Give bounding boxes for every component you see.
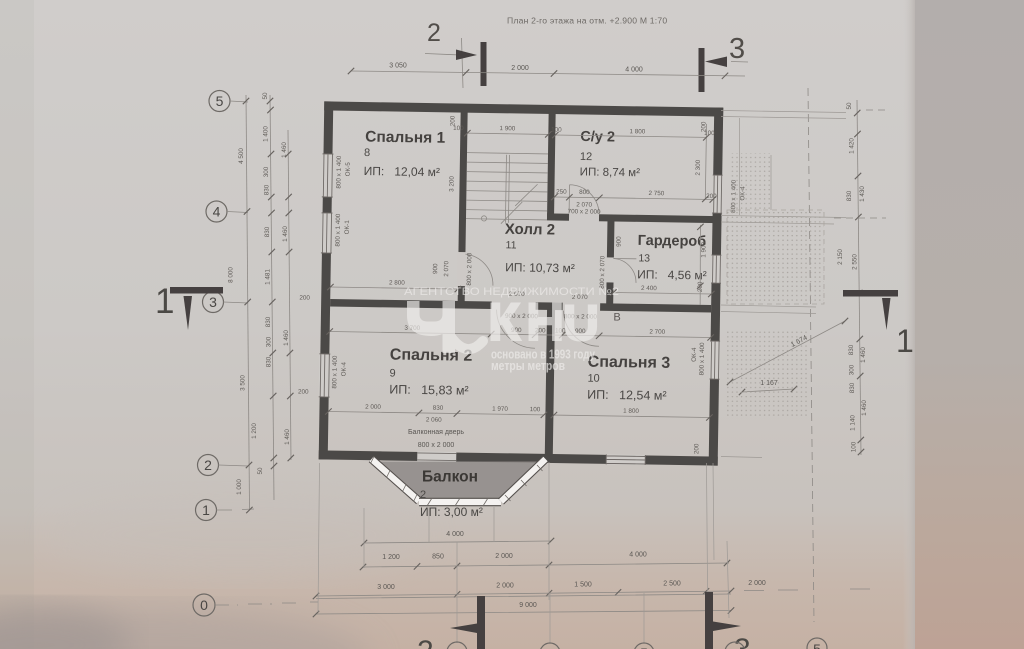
svg-text:ИП: 15,83 м²: ИП: 15,83 м² (389, 382, 469, 397)
svg-text:5: 5 (216, 93, 224, 109)
svg-text:1 200: 1 200 (382, 554, 400, 561)
svg-text:830: 830 (849, 382, 856, 393)
svg-text:2 000: 2 000 (748, 580, 766, 587)
svg-text:2 000: 2 000 (496, 583, 514, 590)
svg-text:300: 300 (263, 166, 270, 177)
svg-text:1 900: 1 900 (499, 125, 515, 132)
svg-text:830: 830 (264, 226, 271, 237)
svg-text:800 х 2 000: 800 х 2 000 (418, 442, 455, 449)
svg-text:2 000: 2 000 (365, 404, 381, 411)
svg-text:Гардероб: Гардероб (638, 233, 707, 250)
svg-text:Спальня 1: Спальня 1 (365, 129, 446, 147)
svg-text:2: 2 (427, 19, 441, 47)
svg-text:300: 300 (849, 364, 856, 375)
svg-text:Балкон: Балкон (422, 469, 478, 486)
svg-text:800 х 2 000: 800 х 2 000 (466, 252, 474, 286)
svg-text:1 200: 1 200 (251, 423, 258, 439)
svg-text:1 800: 1 800 (629, 128, 645, 135)
svg-text:1 140: 1 140 (850, 415, 857, 431)
svg-text:2 070: 2 070 (443, 260, 450, 276)
svg-text:250: 250 (556, 189, 567, 196)
svg-text:2 800: 2 800 (389, 279, 405, 286)
svg-text:830: 830 (433, 405, 444, 412)
svg-text:ОК-1: ОК-1 (344, 220, 351, 235)
svg-text:2 000: 2 000 (495, 553, 513, 560)
svg-text:5: 5 (813, 641, 821, 649)
svg-text:830: 830 (846, 190, 853, 201)
svg-text:200: 200 (449, 115, 456, 126)
svg-text:4 000: 4 000 (446, 531, 464, 538)
svg-text:3 050: 3 050 (389, 63, 407, 70)
svg-text:1: 1 (896, 323, 914, 359)
svg-text:ИП: 10,73 м²: ИП: 10,73 м² (505, 260, 575, 275)
svg-text:1 460: 1 460 (282, 226, 289, 242)
svg-text:метры метров: метры метров (491, 359, 565, 373)
svg-text:200: 200 (298, 389, 309, 396)
svg-text:10: 10 (587, 373, 599, 385)
svg-text:1 481: 1 481 (264, 269, 271, 285)
svg-text:700 х 2 000: 700 х 2 000 (568, 208, 602, 216)
svg-text:12: 12 (580, 151, 592, 163)
svg-text:ИП: 4,56 м²: ИП: 4,56 м² (637, 267, 707, 282)
svg-text:ИП: 3,00 м²: ИП: 3,00 м² (420, 505, 483, 519)
svg-text:900: 900 (432, 263, 439, 274)
svg-text:1 420: 1 420 (849, 138, 856, 154)
svg-text:1: 1 (202, 502, 210, 518)
svg-text:830: 830 (263, 184, 270, 195)
svg-text:1 460: 1 460 (281, 142, 288, 158)
svg-text:830: 830 (265, 316, 272, 327)
svg-text:ИП: 12,04 м²: ИП: 12,04 м² (364, 164, 440, 179)
svg-text:1 800: 1 800 (623, 408, 639, 415)
svg-text:3 500: 3 500 (240, 375, 247, 391)
svg-text:ОК-4: ОК-4 (691, 347, 698, 362)
svg-text:ИП: 8,74 м²: ИП: 8,74 м² (580, 166, 641, 179)
svg-text:С/у 2: С/у 2 (580, 129, 615, 146)
svg-text:4 000: 4 000 (629, 552, 647, 559)
svg-text:100: 100 (704, 130, 715, 137)
svg-text:1 460: 1 460 (861, 400, 868, 416)
svg-text:ОК-5: ОК-5 (345, 162, 352, 177)
svg-text:850: 850 (432, 554, 444, 561)
svg-text:200: 200 (299, 295, 310, 302)
svg-text:1 460: 1 460 (284, 429, 291, 445)
svg-text:1 460: 1 460 (283, 330, 290, 346)
svg-text:0: 0 (200, 597, 208, 613)
svg-text:1 970: 1 970 (492, 406, 508, 413)
svg-text:100: 100 (530, 406, 541, 413)
svg-text:100: 100 (551, 126, 562, 133)
svg-text:4 000: 4 000 (625, 67, 643, 74)
svg-text:3: 3 (734, 633, 751, 649)
svg-text:200: 200 (697, 281, 704, 292)
svg-text:2 060: 2 060 (426, 417, 442, 424)
svg-text:50: 50 (257, 467, 264, 475)
svg-text:50: 50 (262, 92, 269, 100)
svg-text:2 150: 2 150 (837, 249, 844, 265)
svg-text:800: 800 (579, 189, 590, 196)
svg-text:4: 4 (213, 204, 221, 220)
svg-text:200: 200 (706, 193, 717, 200)
svg-text:2: 2 (417, 635, 434, 649)
svg-text:1 500: 1 500 (574, 582, 592, 589)
svg-text:1 900: 1 900 (700, 241, 707, 257)
svg-text:13: 13 (638, 252, 650, 264)
svg-text:5: 5 (640, 645, 648, 649)
svg-text:2 750: 2 750 (648, 190, 664, 197)
svg-text:1: 1 (155, 282, 174, 321)
svg-text:Спальня 3: Спальня 3 (588, 354, 671, 372)
svg-text:К: К (488, 293, 521, 352)
svg-text:900: 900 (616, 236, 623, 247)
svg-text:830: 830 (848, 344, 855, 355)
svg-text:2 400: 2 400 (641, 285, 657, 292)
svg-text:9 000: 9 000 (519, 602, 537, 609)
svg-text:100: 100 (851, 441, 858, 452)
svg-text:Холл 2: Холл 2 (505, 221, 555, 239)
svg-text:3 000: 3 000 (377, 584, 395, 591)
svg-text:1 430: 1 430 (859, 186, 866, 202)
svg-text:1 000: 1 000 (236, 479, 243, 495)
svg-text:2 700: 2 700 (649, 329, 665, 336)
svg-text:3 200: 3 200 (448, 175, 455, 191)
svg-text:2: 2 (420, 489, 426, 501)
svg-text:830: 830 (266, 356, 273, 367)
svg-text:U: U (563, 295, 599, 351)
svg-text:2: 2 (204, 457, 212, 473)
svg-text:9: 9 (389, 367, 395, 379)
svg-text:Н: Н (526, 293, 564, 352)
svg-text:8 000: 8 000 (228, 267, 235, 283)
svg-text:800 х 1 400: 800 х 1 400 (335, 213, 343, 247)
svg-text:800 х 1 400: 800 х 1 400 (331, 355, 339, 389)
svg-text:800 х 1 400: 800 х 1 400 (335, 155, 343, 189)
svg-text:2 000: 2 000 (511, 65, 529, 72)
svg-text:11: 11 (505, 239, 516, 251)
svg-text:4 500: 4 500 (238, 148, 245, 164)
svg-text:ОК-4: ОК-4 (340, 362, 347, 377)
svg-text:300: 300 (265, 336, 272, 347)
svg-text:3: 3 (209, 294, 217, 310)
svg-text:1 400: 1 400 (263, 126, 270, 142)
svg-text:50: 50 (846, 102, 853, 110)
svg-text:ИП: 12,54 м²: ИП: 12,54 м² (587, 388, 667, 403)
svg-text:3: 3 (729, 33, 745, 65)
svg-text:2 550: 2 550 (852, 254, 859, 270)
svg-text:Балконная дверь: Балконная дверь (408, 429, 464, 436)
svg-text:8: 8 (364, 147, 370, 159)
svg-text:800 х 1 400: 800 х 1 400 (699, 342, 707, 376)
svg-text:2 500: 2 500 (663, 581, 681, 588)
svg-text:1 460: 1 460 (860, 347, 867, 363)
svg-text:200: 200 (693, 443, 700, 454)
svg-text:В: В (613, 311, 621, 323)
svg-text:800 х 2 070: 800 х 2 070 (599, 255, 607, 289)
svg-text:План 2-го этажа на отм. +2.900: План 2-го этажа на отм. +2.900 М 1:70 (507, 16, 667, 26)
svg-text:2 300: 2 300 (695, 159, 702, 175)
